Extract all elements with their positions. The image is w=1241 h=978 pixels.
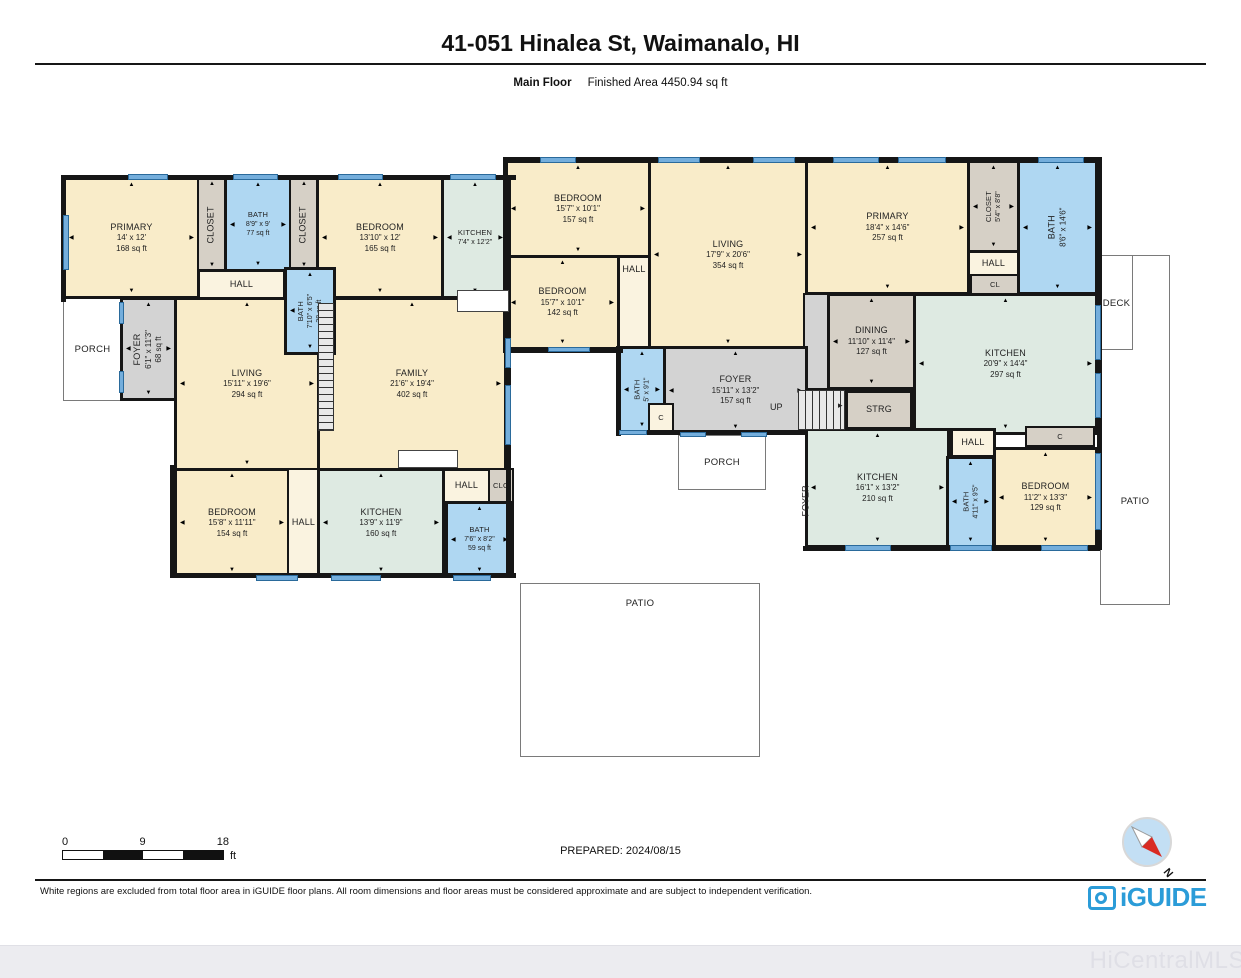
- iguide-camera-icon: [1088, 886, 1116, 910]
- dimension-arrow-icon: ◀: [180, 520, 185, 526]
- dimension-arrow-icon: ◀: [69, 235, 74, 241]
- window-segment: [548, 347, 590, 352]
- room-label: HALL: [230, 279, 253, 291]
- room-label: CLOSET5'4" x 8'8": [984, 191, 1003, 222]
- dimension-arrow-icon: ▶: [496, 381, 501, 387]
- dimension-arrow-icon: ▶: [797, 252, 802, 258]
- room-label: BATH5' x 9'1": [632, 377, 651, 401]
- dimension-arrow-icon: ▼: [885, 284, 891, 290]
- room-family: FAMILY21'6" x 19'4"402 sq ft◀▶▲▼: [317, 297, 507, 471]
- room-label: C: [658, 413, 664, 423]
- dimension-arrow-icon: ▶: [279, 520, 284, 526]
- window-segment: [540, 157, 576, 163]
- dimension-arrow-icon: ◀: [322, 235, 327, 241]
- svg-text:N: N: [1161, 866, 1175, 880]
- window-segment: [119, 371, 124, 393]
- room-strg: STRG: [845, 390, 913, 430]
- room-label: HALL: [622, 264, 645, 276]
- dimension-arrow-icon: ▼: [869, 379, 875, 385]
- fixture: [398, 450, 458, 468]
- window-segment: [741, 432, 767, 437]
- bottom-bar: [0, 945, 1241, 978]
- dimension-arrow-icon: ▼: [575, 247, 581, 253]
- dimension-arrow-icon: ◀: [999, 495, 1004, 501]
- dimension-arrow-icon: ▼: [1055, 284, 1061, 290]
- room-label: LIVING17'9" x 20'6"354 sq ft: [706, 239, 750, 272]
- outdoor-porch-left: PORCH: [63, 297, 122, 401]
- iguide-brand-text: iGUIDE: [1120, 882, 1207, 913]
- dimension-arrow-icon: ▶: [309, 381, 314, 387]
- room-primary-1: PRIMARY14' x 12'168 sq ft◀▶▲▼: [63, 177, 200, 299]
- iguide-logo: iGUIDE: [1088, 882, 1207, 913]
- dimension-arrow-icon: ▶: [1087, 361, 1092, 367]
- dimension-arrow-icon: ◀: [451, 537, 456, 543]
- dimension-arrow-icon: ▶: [984, 499, 989, 505]
- wall-segment: [503, 157, 1102, 162]
- dimension-arrow-icon: ▲: [209, 181, 215, 187]
- dimension-arrow-icon: ▲: [301, 181, 307, 187]
- wall-segment: [616, 346, 621, 436]
- room-label: BATH7'6" x 8'2"59 sq ft: [464, 525, 495, 553]
- dimension-arrow-icon: ◀: [973, 204, 978, 210]
- dimension-arrow-icon: ◀: [126, 346, 131, 352]
- room-foyer-2: FOYER15'11" x 13'2"157 sq ft◀▶▲▼: [663, 346, 808, 435]
- room-c-2: C: [1025, 426, 1095, 447]
- window-segment: [450, 174, 496, 180]
- dimension-arrow-icon: ▲: [409, 302, 415, 308]
- room-label: BEDROOM15'8" x 11'11"154 sq ft: [208, 507, 256, 540]
- dimension-arrow-icon: ▲: [477, 506, 483, 512]
- dimension-arrow-icon: ◀: [669, 388, 674, 394]
- dimension-arrow-icon: ◀: [811, 485, 816, 491]
- room-bedroom-4: BEDROOM15'7" x 10'1"142 sq ft◀▶▲▼: [505, 255, 620, 350]
- dimension-arrow-icon: ▼: [1003, 424, 1009, 430]
- window-segment: [233, 174, 278, 180]
- window-segment: [119, 302, 124, 324]
- dimension-arrow-icon: ▼: [560, 339, 566, 345]
- watermark-text: HiCentralMLS: [1090, 947, 1241, 975]
- room-hall-3: HALL: [442, 468, 491, 504]
- room-label: LIVING15'11" x 19'6"294 sq ft: [223, 368, 271, 401]
- window-segment: [1038, 157, 1084, 163]
- room-label: CLOSET: [206, 206, 218, 243]
- label-foyer-3-label: FOYER: [801, 485, 811, 516]
- dimension-arrow-icon: ▲: [575, 165, 581, 171]
- stairs: [318, 303, 334, 431]
- dimension-arrow-icon: ▶: [640, 206, 645, 212]
- room-label: PRIMARY14' x 12'168 sq ft: [110, 222, 152, 255]
- outdoor-patio-bottom: PATIO: [520, 583, 760, 757]
- room-closet-1: CLOSET▲▼: [197, 177, 227, 272]
- room-bath-6: BATH4'11" x 9'5"◀▶▲▼: [946, 456, 995, 548]
- room-hall-1: HALL: [197, 269, 286, 300]
- dimension-arrow-icon: ◀: [511, 300, 516, 306]
- room-hall-2: HALL: [287, 468, 320, 578]
- room-label: BEDROOM11'2" x 13'3"129 sq ft: [1022, 481, 1070, 514]
- window-segment: [753, 157, 795, 163]
- room-label: HALL: [292, 517, 315, 529]
- room-label: STRG: [866, 404, 892, 416]
- dimension-arrow-icon: ▲: [1055, 165, 1061, 171]
- prepared-date: PREPARED: 2024/08/15: [0, 845, 1241, 857]
- dimension-arrow-icon: ▲: [968, 461, 974, 467]
- dimension-arrow-icon: ◀: [919, 361, 924, 367]
- room-kitchen-1: KITCHEN7'4" x 12'2"◀▶▲▼: [441, 177, 509, 299]
- dimension-arrow-icon: ▲: [875, 433, 881, 439]
- dimension-arrow-icon: ▶: [281, 222, 286, 228]
- room-label: KITCHEN13'9" x 11'9"160 sq ft: [359, 507, 402, 540]
- room-primary-2: PRIMARY18'4" x 14'6"257 sq ft◀▶▲▼: [805, 160, 970, 295]
- dimension-arrow-icon: ◀: [1023, 225, 1028, 231]
- room-label: CL: [990, 280, 1000, 290]
- dimension-arrow-icon: ▲: [377, 182, 383, 188]
- window-segment: [453, 575, 491, 581]
- room-label: BATH4'11" x 9'5": [961, 485, 980, 519]
- dimension-arrow-icon: ▼: [1043, 537, 1049, 543]
- dimension-arrow-icon: ▲: [1003, 298, 1009, 304]
- dimension-arrow-icon: ▼: [209, 262, 215, 268]
- footer-divider: [35, 879, 1206, 881]
- window-segment: [128, 174, 168, 180]
- dimension-arrow-icon: ▼: [875, 537, 881, 543]
- outdoor-deck: DECK: [1100, 255, 1133, 350]
- window-segment: [256, 575, 298, 581]
- room-bath-1: BATH8'9" x 9'77 sq ft◀▶▲▼: [224, 177, 292, 272]
- dimension-arrow-icon: ▼: [377, 288, 383, 294]
- room-bedroom-2: BEDROOM15'8" x 11'11"154 sq ft◀▶▲▼: [174, 468, 290, 578]
- dimension-arrow-icon: ◀: [180, 381, 185, 387]
- room-kitchen-2: KITCHEN13'9" x 11'9"160 sq ft◀▶▲▼: [317, 468, 445, 578]
- room-label: BATH8'6" x 14'6": [1046, 208, 1068, 247]
- window-segment: [331, 575, 381, 581]
- disclaimer-text: White regions are excluded from total fl…: [40, 886, 812, 897]
- window-segment: [505, 338, 511, 368]
- fixture: [457, 290, 509, 312]
- dimension-arrow-icon: ◀: [447, 235, 452, 241]
- room-label: HALL: [455, 480, 478, 492]
- room-label: KITCHEN20'9" x 14'4"297 sq ft: [984, 348, 1028, 381]
- room-bath-4: BATH8'6" x 14'6"◀▶▲▼: [1017, 160, 1098, 295]
- dimension-arrow-icon: ▼: [244, 460, 250, 466]
- dimension-arrow-icon: ▶: [609, 300, 614, 306]
- label-up-label: UP: [770, 402, 783, 412]
- wall-segment: [170, 465, 175, 578]
- compass-icon: N: [1121, 816, 1177, 887]
- wall-segment: [503, 157, 508, 353]
- room-hall-4: HALL: [617, 255, 651, 350]
- window-segment: [950, 545, 992, 551]
- dimension-arrow-icon: ▲: [146, 302, 152, 308]
- dimension-arrow-icon: ▲: [869, 298, 875, 304]
- dimension-arrow-icon: ◀: [833, 339, 838, 345]
- dimension-arrow-icon: ▼: [255, 261, 261, 267]
- dimension-arrow-icon: ◀: [654, 252, 659, 258]
- room-label: FOYER6'1" x 11'3"68 sq ft: [132, 330, 165, 369]
- dimension-arrow-icon: ▶: [434, 520, 439, 526]
- dimension-arrow-icon: ▲: [725, 165, 731, 171]
- room-label: BATH8'9" x 9'77 sq ft: [246, 210, 270, 238]
- dimension-arrow-icon: ▲: [244, 302, 250, 308]
- window-segment: [619, 430, 647, 435]
- dimension-arrow-icon: ▶: [1009, 204, 1014, 210]
- floor-plan: PATIODECKPATIOPORCHPORCHPRIMARY14' x 12'…: [0, 0, 1241, 978]
- dimension-arrow-icon: ◀: [323, 520, 328, 526]
- label-up-arrow: ▸: [838, 400, 843, 411]
- room-label: HALL: [982, 258, 1005, 270]
- window-segment: [1041, 545, 1088, 551]
- room-closet-3: CLOSET5'4" x 8'8"◀▶▲▼: [967, 160, 1020, 253]
- dimension-arrow-icon: ◀: [290, 308, 295, 314]
- dimension-arrow-icon: ◀: [811, 225, 816, 231]
- room-bath-3: BATH7'6" x 8'2"59 sq ft◀▶▲▼: [445, 501, 514, 578]
- dimension-arrow-icon: ▲: [472, 182, 478, 188]
- room-label: BEDROOM13'10" x 12'165 sq ft: [356, 222, 404, 255]
- dimension-arrow-icon: ◀: [952, 499, 957, 505]
- dimension-arrow-icon: ▶: [1087, 225, 1092, 231]
- dimension-arrow-icon: ▲: [885, 165, 891, 171]
- dimension-arrow-icon: ▲: [991, 165, 997, 171]
- dimension-arrow-icon: ▼: [968, 537, 974, 543]
- room-bedroom-5: BEDROOM11'2" x 13'3"129 sq ft◀▶▲▼: [993, 447, 1098, 548]
- dimension-arrow-icon: ▶: [1087, 495, 1092, 501]
- room-label: FAMILY21'6" x 19'4"402 sq ft: [390, 368, 434, 401]
- outdoor-label: PATIO: [1121, 496, 1150, 507]
- room-label: CLOSET: [298, 206, 310, 243]
- dimension-arrow-icon: ▲: [1043, 452, 1049, 458]
- room-kitchen-3: KITCHEN20'9" x 14'4"297 sq ft◀▶▲▼: [913, 293, 1098, 435]
- dimension-arrow-icon: ▼: [307, 344, 313, 350]
- dimension-arrow-icon: ◀: [624, 387, 629, 393]
- dimension-arrow-icon: ▲: [378, 473, 384, 479]
- window-segment: [1095, 305, 1101, 360]
- window-segment: [505, 385, 511, 445]
- room-c-1: C: [648, 403, 674, 433]
- room-label: PRIMARY18'4" x 14'6"257 sq ft: [866, 211, 910, 244]
- window-segment: [658, 157, 700, 163]
- room-label: DINING11'10" x 11'4"127 sq ft: [848, 325, 895, 358]
- dimension-arrow-icon: ▼: [146, 390, 152, 396]
- dimension-arrow-icon: ▲: [229, 473, 235, 479]
- room-label: FOYER15'11" x 13'2"157 sq ft: [712, 374, 760, 407]
- window-segment: [1095, 373, 1101, 418]
- dimension-arrow-icon: ▼: [639, 422, 645, 428]
- dimension-arrow-icon: ▶: [189, 235, 194, 241]
- dimension-arrow-icon: ▲: [255, 182, 261, 188]
- dimension-arrow-icon: ▼: [991, 242, 997, 248]
- room-living-2: LIVING17'9" x 20'6"354 sq ft◀▶▲▼: [648, 160, 808, 350]
- window-segment: [1095, 453, 1101, 530]
- dimension-arrow-icon: ▶: [939, 485, 944, 491]
- window-segment: [833, 157, 879, 163]
- window-segment: [845, 545, 891, 551]
- room-closet-2: CLOSET▲▼: [289, 177, 319, 272]
- room-dining: DINING11'10" x 11'4"127 sq ft◀▶▲▼: [827, 293, 916, 390]
- room-hall-6: HALL: [950, 428, 996, 458]
- dimension-arrow-icon: ◀: [230, 222, 235, 228]
- dimension-arrow-icon: ▲: [733, 351, 739, 357]
- outdoor-porch-right: PORCH: [678, 435, 766, 490]
- dimension-arrow-icon: ▶: [905, 339, 910, 345]
- dimension-arrow-icon: ▶: [166, 346, 171, 352]
- dimension-arrow-icon: ▲: [307, 272, 313, 278]
- outdoor-label: PORCH: [75, 344, 111, 355]
- window-segment: [898, 157, 946, 163]
- dimension-arrow-icon: ▲: [560, 260, 566, 266]
- room-foyer-1: FOYER6'1" x 11'3"68 sq ft◀▶▲▼: [120, 297, 177, 401]
- room-label: C: [1057, 432, 1063, 442]
- window-segment: [63, 215, 69, 270]
- room-cl: CL: [970, 274, 1020, 295]
- dimension-arrow-icon: ▶: [433, 235, 438, 241]
- room-label: KITCHEN16'1" x 13'2"210 sq ft: [856, 472, 900, 505]
- dimension-arrow-icon: ▼: [725, 339, 731, 345]
- dimension-arrow-icon: ▼: [129, 288, 135, 294]
- outdoor-label: PORCH: [704, 457, 740, 468]
- room-label: HALL: [961, 437, 984, 449]
- dimension-arrow-icon: ◀: [511, 206, 516, 212]
- dimension-arrow-icon: ▶: [959, 225, 964, 231]
- room-label: BEDROOM15'7" x 10'1"142 sq ft: [539, 286, 587, 319]
- window-segment: [680, 432, 706, 437]
- room-kitchen-4: KITCHEN16'1" x 13'2"210 sq ft◀▶▲▼: [805, 428, 950, 548]
- outdoor-label: DECK: [1103, 298, 1131, 309]
- dimension-arrow-icon: ▶: [655, 387, 660, 393]
- dimension-arrow-icon: ▲: [129, 182, 135, 188]
- room-label: BEDROOM15'7" x 10'1"157 sq ft: [554, 193, 602, 226]
- room-label: KITCHEN7'4" x 12'2": [458, 228, 493, 247]
- dimension-arrow-icon: ▲: [639, 351, 645, 357]
- window-segment: [338, 174, 383, 180]
- room-bedroom-3: BEDROOM15'7" x 10'1"157 sq ft◀▶▲▼: [505, 160, 651, 258]
- outdoor-label: PATIO: [626, 598, 655, 609]
